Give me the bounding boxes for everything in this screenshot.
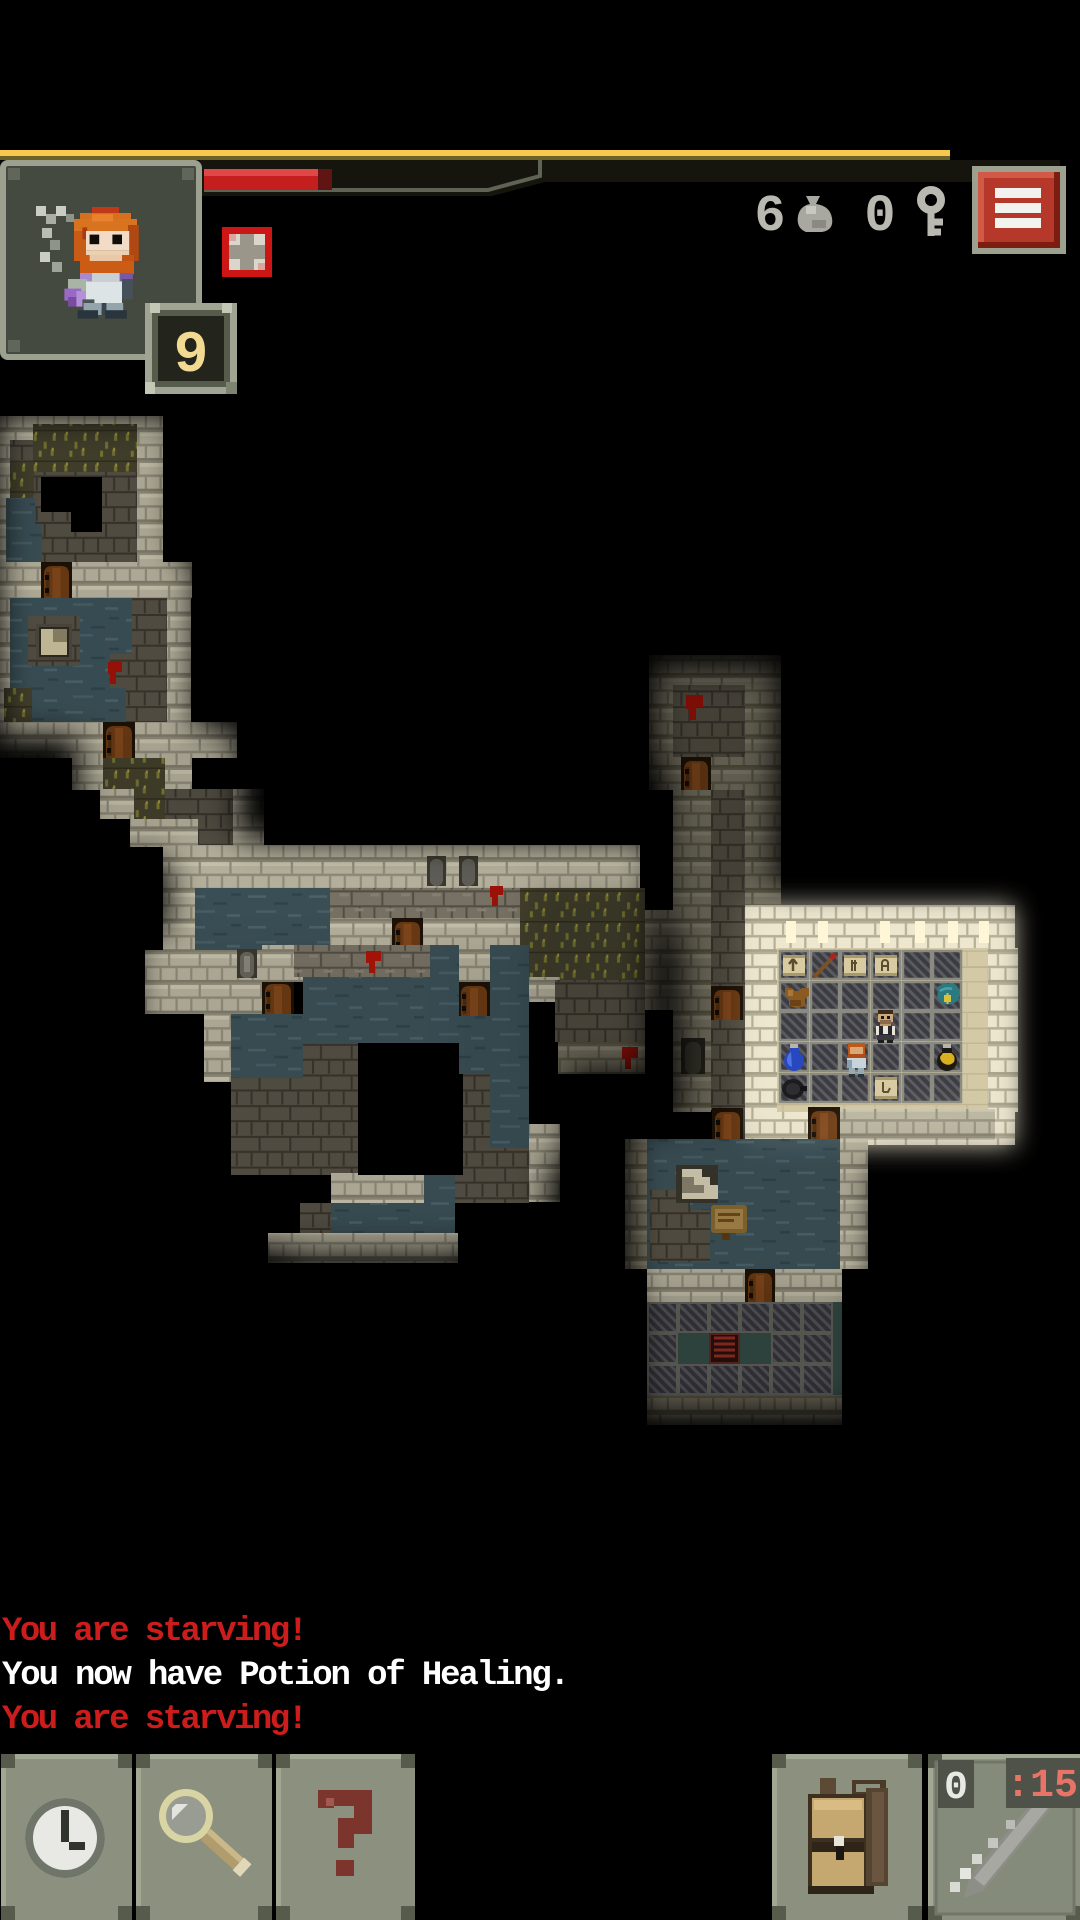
svg-text:9: 9 [174, 324, 209, 389]
svg-text:You now have Potion of Healing: You now have Potion of Healing. [2, 1657, 570, 1695]
svg-text:0: 0 [944, 1766, 968, 1811]
svg-text::15: :15 [1006, 1764, 1078, 1809]
svg-text:You are starving!: You are starving! [2, 1613, 308, 1651]
svg-text:0: 0 [864, 187, 895, 246]
svg-text:6: 6 [754, 187, 785, 246]
svg-text:You are starving!: You are starving! [2, 1701, 308, 1739]
